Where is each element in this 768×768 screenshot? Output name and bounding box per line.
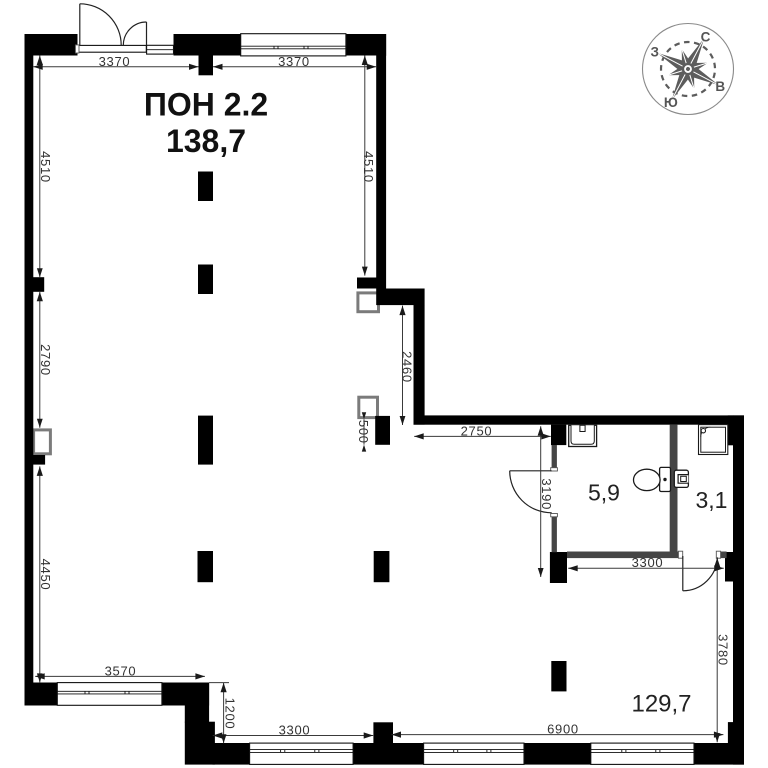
- svg-text:ПОН 2.2: ПОН 2.2: [144, 86, 268, 122]
- svg-text:3570: 3570: [105, 663, 137, 678]
- svg-text:3,1: 3,1: [696, 487, 728, 513]
- svg-text:2750: 2750: [461, 424, 493, 439]
- svg-text:3190: 3190: [539, 478, 554, 510]
- svg-text:З: З: [650, 44, 658, 59]
- svg-text:2460: 2460: [399, 351, 414, 383]
- svg-text:4510: 4510: [361, 151, 376, 183]
- svg-text:3300: 3300: [632, 555, 664, 570]
- svg-text:5,9: 5,9: [588, 480, 620, 506]
- svg-text:3300: 3300: [279, 723, 311, 738]
- svg-text:Ю: Ю: [664, 95, 678, 110]
- svg-text:138,7: 138,7: [166, 123, 246, 159]
- svg-text:129,7: 129,7: [631, 691, 691, 718]
- svg-text:3370: 3370: [99, 54, 131, 69]
- svg-text:4510: 4510: [38, 151, 53, 183]
- svg-text:В: В: [715, 79, 725, 94]
- svg-text:С: С: [701, 29, 711, 44]
- svg-text:6900: 6900: [547, 722, 579, 737]
- svg-text:4450: 4450: [38, 559, 53, 591]
- svg-text:3780: 3780: [716, 634, 731, 666]
- svg-text:1200: 1200: [222, 698, 237, 730]
- svg-text:500: 500: [356, 420, 371, 444]
- svg-text:2790: 2790: [38, 344, 53, 376]
- svg-text:3370: 3370: [278, 54, 310, 69]
